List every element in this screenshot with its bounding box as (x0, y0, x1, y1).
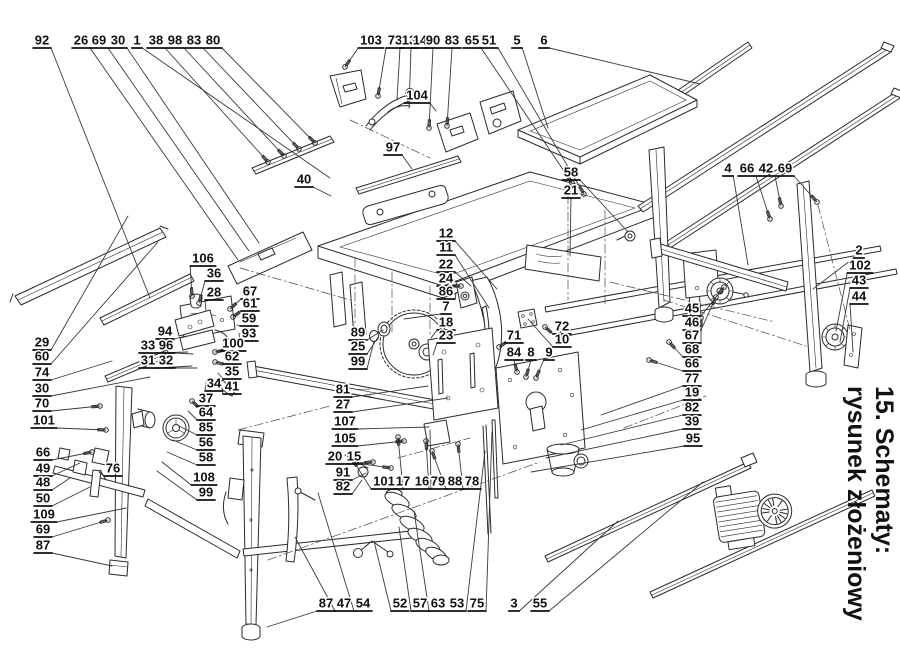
part-label-69: 69 (776, 161, 794, 177)
svg-text:10: 10 (555, 332, 569, 347)
svg-text:101: 101 (373, 474, 395, 489)
svg-text:15: 15 (347, 449, 361, 464)
svg-text:34: 34 (207, 376, 222, 391)
svg-text:40: 40 (297, 172, 311, 187)
svg-text:19: 19 (685, 385, 699, 400)
part-label-38: 38 (147, 33, 165, 49)
part-label-69: 69 (34, 522, 52, 538)
part-label-4: 4 (723, 161, 734, 177)
electric-motor (711, 477, 796, 551)
part-label-92: 92 (33, 33, 51, 49)
svg-text:66: 66 (685, 356, 699, 371)
svg-text:6: 6 (540, 33, 547, 48)
svg-text:89: 89 (351, 325, 365, 340)
part-label-39: 39 (683, 414, 701, 430)
part-label-26: 26 (72, 33, 90, 49)
svg-text:56: 56 (199, 435, 213, 450)
part-label-21: 21 (562, 183, 580, 199)
svg-text:45: 45 (685, 301, 699, 316)
part-label-56: 56 (197, 435, 215, 451)
part-label-83: 83 (443, 33, 461, 49)
svg-text:87: 87 (36, 538, 50, 553)
part-label-30: 30 (33, 381, 51, 397)
part-label-78: 78 (463, 474, 481, 490)
part-label-44: 44 (850, 289, 868, 305)
part-label-53: 53 (448, 596, 466, 612)
part-label-35: 35 (223, 364, 241, 380)
part-label-36: 36 (205, 266, 223, 282)
svg-text:104: 104 (406, 88, 428, 103)
part-label-19: 19 (683, 385, 701, 401)
part-label-85: 85 (197, 420, 215, 436)
part-label-3: 3 (509, 596, 520, 612)
part-label-88: 88 (446, 474, 464, 490)
svg-text:29: 29 (35, 335, 49, 350)
part-label-60: 60 (33, 349, 51, 365)
svg-text:98: 98 (168, 33, 182, 48)
part-label-32: 32 (157, 353, 175, 369)
svg-text:60: 60 (35, 349, 49, 364)
section-title: 15. Schematy: rysunek złożeniowy (842, 386, 898, 665)
part-label-23: 23 (437, 328, 455, 344)
svg-text:7: 7 (442, 299, 449, 314)
svg-text:11: 11 (439, 240, 453, 255)
part-label-51: 51 (480, 33, 498, 49)
part-label-11: 11 (437, 240, 455, 256)
svg-text:38: 38 (149, 33, 163, 48)
svg-text:37: 37 (199, 391, 213, 406)
svg-text:39: 39 (685, 414, 699, 429)
svg-text:103: 103 (360, 33, 382, 48)
part-label-7: 7 (441, 299, 452, 315)
part-label-28: 28 (205, 285, 223, 301)
svg-text:68: 68 (685, 342, 699, 357)
svg-text:107: 107 (334, 414, 356, 429)
part-label-57: 57 (411, 596, 429, 612)
part-label-99: 99 (197, 485, 215, 501)
part-label-43: 43 (850, 273, 868, 289)
part-label-86: 86 (437, 284, 455, 300)
part-label-95: 95 (684, 431, 702, 447)
svg-text:44: 44 (852, 289, 867, 304)
svg-text:50: 50 (36, 491, 50, 506)
svg-text:5: 5 (513, 33, 520, 48)
part-label-27: 27 (334, 397, 352, 413)
svg-text:109: 109 (33, 507, 55, 522)
svg-text:22: 22 (439, 257, 453, 272)
svg-text:43: 43 (852, 273, 866, 288)
svg-text:2: 2 (855, 243, 862, 258)
part-label-48: 48 (34, 475, 52, 491)
section-title-line1: 15. Schematy: (870, 386, 898, 665)
part-label-61: 61 (241, 296, 259, 312)
svg-text:78: 78 (465, 474, 479, 489)
svg-text:30: 30 (111, 33, 125, 48)
part-label-108: 108 (191, 470, 217, 486)
svg-text:36: 36 (207, 266, 221, 281)
svg-text:77: 77 (685, 371, 699, 386)
part-label-90: 90 (424, 33, 442, 49)
svg-text:8: 8 (527, 345, 534, 360)
blade-guard-parts (330, 70, 521, 152)
part-label-8: 8 (526, 345, 537, 361)
part-label-16: 16 (413, 474, 431, 490)
part-label-31: 31 (139, 353, 157, 369)
svg-text:99: 99 (351, 354, 365, 369)
part-label-17: 17 (394, 474, 412, 490)
svg-text:1: 1 (133, 33, 140, 48)
svg-text:49: 49 (36, 461, 50, 476)
part-label-66: 66 (34, 445, 52, 461)
part-label-42: 42 (757, 161, 775, 177)
part-label-25: 25 (349, 339, 367, 355)
svg-text:73: 73 (388, 33, 402, 48)
part-label-34: 34 (205, 376, 223, 392)
part-label-101: 101 (31, 413, 57, 429)
part-label-97: 97 (384, 140, 402, 156)
svg-text:69: 69 (778, 161, 792, 176)
svg-text:58: 58 (564, 165, 578, 180)
part-label-109: 109 (31, 507, 57, 523)
part-label-40: 40 (295, 172, 313, 188)
svg-text:69: 69 (36, 522, 50, 537)
svg-text:20: 20 (328, 449, 342, 464)
part-label-52: 52 (391, 596, 409, 612)
svg-text:94: 94 (158, 324, 173, 339)
svg-text:84: 84 (507, 345, 522, 360)
svg-text:83: 83 (187, 33, 201, 48)
part-label-10: 10 (553, 332, 571, 348)
fence-plate (228, 232, 312, 284)
part-label-30: 30 (109, 33, 127, 49)
svg-text:25: 25 (351, 339, 365, 354)
svg-text:71: 71 (507, 328, 521, 343)
svg-text:52: 52 (393, 596, 407, 611)
svg-text:99: 99 (199, 485, 213, 500)
part-label-64: 64 (197, 405, 215, 421)
svg-text:65: 65 (465, 33, 479, 48)
svg-text:54: 54 (356, 596, 371, 611)
svg-text:108: 108 (193, 470, 215, 485)
svg-text:101: 101 (33, 413, 55, 428)
part-label-66: 66 (683, 356, 701, 372)
part-label-98: 98 (166, 33, 184, 49)
svg-text:97: 97 (386, 140, 400, 155)
svg-text:23: 23 (439, 328, 453, 343)
part-label-104: 104 (404, 88, 430, 104)
svg-text:102: 102 (849, 258, 871, 273)
part-label-82: 82 (334, 479, 352, 495)
svg-text:9: 9 (545, 345, 552, 360)
svg-text:42: 42 (759, 161, 773, 176)
svg-text:30: 30 (35, 381, 49, 396)
part-label-80: 80 (204, 33, 222, 49)
part-label-69: 69 (90, 33, 108, 49)
svg-text:67: 67 (685, 328, 699, 343)
svg-text:53: 53 (450, 596, 464, 611)
svg-text:33: 33 (141, 338, 155, 353)
part-label-55: 55 (531, 596, 549, 612)
svg-text:17: 17 (396, 474, 410, 489)
part-label-87: 87 (317, 596, 335, 612)
svg-text:41: 41 (225, 379, 239, 394)
part-label-65: 65 (463, 33, 481, 49)
svg-text:58: 58 (199, 450, 213, 465)
svg-text:76: 76 (106, 461, 120, 476)
part-label-74: 74 (33, 365, 51, 381)
part-label-47: 47 (335, 596, 353, 612)
svg-text:79: 79 (431, 474, 445, 489)
svg-text:27: 27 (336, 397, 350, 412)
part-label-102: 102 (847, 258, 873, 274)
svg-text:59: 59 (242, 311, 256, 326)
part-label-70: 70 (33, 396, 51, 412)
svg-text:66: 66 (740, 161, 754, 176)
part-label-87: 87 (34, 538, 52, 554)
part-label-75: 75 (468, 596, 486, 612)
svg-text:26: 26 (74, 33, 88, 48)
part-label-83: 83 (185, 33, 203, 49)
part-label-5: 5 (512, 33, 523, 49)
part-label-101: 101 (371, 474, 397, 490)
part-label-96: 96 (157, 338, 175, 354)
part-label-99: 99 (349, 354, 367, 370)
svg-text:88: 88 (448, 474, 462, 489)
svg-text:12: 12 (439, 226, 453, 241)
part-label-20: 20 (326, 449, 344, 465)
svg-text:51: 51 (482, 33, 496, 48)
svg-text:69: 69 (92, 33, 106, 48)
svg-text:61: 61 (243, 296, 257, 311)
svg-text:28: 28 (207, 285, 221, 300)
svg-text:105: 105 (334, 431, 356, 446)
svg-text:57: 57 (413, 596, 427, 611)
part-label-54: 54 (354, 596, 372, 612)
part-label-106: 106 (190, 251, 216, 267)
section-title-line2: rysunek złożeniowy (842, 386, 870, 665)
svg-text:81: 81 (336, 382, 350, 397)
svg-text:55: 55 (533, 596, 547, 611)
svg-text:95: 95 (686, 431, 700, 446)
part-label-59: 59 (240, 311, 258, 327)
svg-text:85: 85 (199, 420, 213, 435)
svg-text:75: 75 (470, 596, 484, 611)
part-label-1: 1 (132, 33, 143, 49)
part-label-6: 6 (539, 33, 550, 49)
svg-text:70: 70 (35, 396, 49, 411)
svg-text:96: 96 (159, 338, 173, 353)
part-label-50: 50 (34, 491, 52, 507)
svg-text:106: 106 (192, 251, 214, 266)
part-label-71: 71 (505, 328, 523, 344)
svg-text:3: 3 (510, 596, 517, 611)
svg-text:31: 31 (141, 353, 155, 368)
svg-text:74: 74 (35, 365, 50, 380)
part-label-58: 58 (562, 165, 580, 181)
diagram-line-art: 9226693013898838010373131490836551561049… (0, 0, 900, 665)
part-label-41: 41 (223, 379, 241, 395)
svg-text:63: 63 (431, 596, 445, 611)
svg-text:86: 86 (439, 284, 453, 299)
part-label-81: 81 (334, 382, 352, 398)
part-label-33: 33 (139, 338, 157, 354)
svg-text:64: 64 (199, 405, 214, 420)
part-label-84: 84 (505, 345, 523, 361)
part-label-62: 62 (223, 349, 241, 365)
svg-text:21: 21 (564, 183, 578, 198)
svg-text:66: 66 (36, 445, 50, 460)
part-label-66: 66 (738, 161, 756, 177)
svg-text:35: 35 (225, 364, 239, 379)
svg-text:92: 92 (35, 33, 49, 48)
svg-text:82: 82 (685, 400, 699, 415)
part-label-103: 103 (358, 33, 384, 49)
part-label-79: 79 (429, 474, 447, 490)
svg-text:32: 32 (159, 353, 173, 368)
svg-text:48: 48 (36, 475, 50, 490)
svg-text:87: 87 (319, 596, 333, 611)
svg-text:16: 16 (415, 474, 429, 489)
svg-text:82: 82 (336, 479, 350, 494)
part-label-63: 63 (429, 596, 447, 612)
svg-text:4: 4 (724, 161, 732, 176)
part-label-76: 76 (104, 461, 122, 477)
part-label-15: 15 (345, 449, 363, 465)
svg-text:90: 90 (426, 33, 440, 48)
stretcher-tubes (545, 453, 875, 598)
exploded-assembly-diagram: 9226693013898838010373131490836551561049… (0, 0, 900, 665)
part-label-107: 107 (332, 414, 358, 430)
svg-text:80: 80 (206, 33, 220, 48)
part-label-105: 105 (332, 431, 358, 447)
svg-text:62: 62 (225, 349, 239, 364)
svg-text:47: 47 (337, 596, 351, 611)
part-label-58: 58 (197, 450, 215, 466)
svg-text:93: 93 (242, 326, 256, 341)
svg-text:91: 91 (336, 465, 350, 480)
svg-text:83: 83 (445, 33, 459, 48)
